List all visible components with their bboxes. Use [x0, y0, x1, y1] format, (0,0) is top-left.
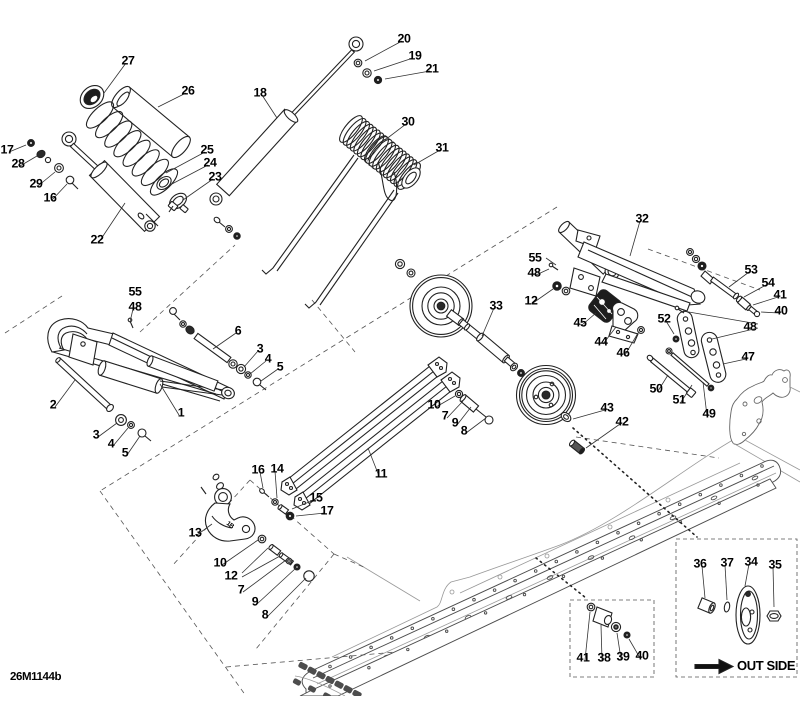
- svg-text:5: 5: [277, 360, 284, 374]
- svg-text:45: 45: [574, 316, 587, 330]
- svg-text:24: 24: [204, 156, 217, 170]
- svg-text:2: 2: [50, 398, 57, 412]
- svg-text:4: 4: [265, 352, 272, 366]
- svg-text:OUT SIDE: OUT SIDE: [737, 658, 796, 673]
- svg-text:48: 48: [129, 300, 142, 314]
- svg-text:51: 51: [673, 393, 686, 407]
- svg-text:46: 46: [617, 346, 630, 360]
- svg-text:5: 5: [122, 446, 129, 460]
- svg-text:23: 23: [209, 170, 222, 184]
- svg-text:40: 40: [636, 649, 649, 663]
- svg-text:40: 40: [775, 304, 788, 318]
- svg-text:48: 48: [528, 266, 541, 280]
- svg-text:10: 10: [214, 556, 227, 570]
- svg-text:17: 17: [1, 143, 14, 157]
- svg-text:55: 55: [529, 251, 542, 265]
- svg-text:11: 11: [375, 467, 388, 481]
- svg-text:42: 42: [616, 415, 629, 429]
- svg-text:50: 50: [650, 382, 663, 396]
- svg-text:15: 15: [310, 491, 323, 505]
- svg-text:16: 16: [252, 463, 265, 477]
- svg-text:16: 16: [44, 191, 57, 205]
- svg-text:37: 37: [721, 556, 734, 570]
- svg-text:12: 12: [525, 294, 538, 308]
- svg-text:19: 19: [409, 49, 422, 63]
- svg-text:6: 6: [235, 324, 242, 338]
- svg-text:49: 49: [703, 407, 716, 421]
- svg-text:44: 44: [595, 335, 608, 349]
- svg-text:26M1144b: 26M1144b: [10, 671, 62, 683]
- svg-text:7: 7: [238, 583, 245, 597]
- svg-text:38: 38: [598, 651, 611, 665]
- svg-text:13: 13: [189, 526, 202, 540]
- svg-text:28: 28: [12, 157, 25, 171]
- svg-text:21: 21: [426, 62, 439, 76]
- svg-text:53: 53: [745, 263, 758, 277]
- svg-text:41: 41: [774, 288, 787, 302]
- svg-text:31: 31: [436, 141, 449, 155]
- svg-text:47: 47: [742, 350, 755, 364]
- svg-text:30: 30: [402, 115, 415, 129]
- svg-text:43: 43: [601, 401, 614, 415]
- svg-text:39: 39: [617, 650, 630, 664]
- svg-text:9: 9: [452, 416, 459, 430]
- svg-text:7: 7: [442, 409, 449, 423]
- svg-text:3: 3: [93, 428, 100, 442]
- svg-text:1: 1: [178, 406, 185, 420]
- svg-text:14: 14: [271, 462, 284, 476]
- svg-text:25: 25: [201, 143, 214, 157]
- svg-text:36: 36: [694, 557, 707, 571]
- svg-text:22: 22: [91, 233, 104, 247]
- svg-text:26: 26: [182, 84, 195, 98]
- svg-text:35: 35: [769, 558, 782, 572]
- svg-text:10: 10: [428, 398, 441, 412]
- svg-text:8: 8: [262, 608, 269, 622]
- svg-text:52: 52: [658, 312, 671, 326]
- svg-text:20: 20: [398, 32, 411, 46]
- svg-text:12: 12: [225, 569, 238, 583]
- svg-text:34: 34: [745, 555, 758, 569]
- svg-text:41: 41: [577, 651, 590, 665]
- svg-text:3: 3: [257, 342, 264, 356]
- svg-text:27: 27: [122, 54, 135, 68]
- svg-text:4: 4: [108, 437, 115, 451]
- svg-text:55: 55: [129, 285, 142, 299]
- svg-text:33: 33: [490, 299, 503, 313]
- svg-text:9: 9: [252, 595, 259, 609]
- svg-text:18: 18: [254, 86, 267, 100]
- svg-text:17: 17: [321, 504, 334, 518]
- svg-text:32: 32: [636, 212, 649, 226]
- svg-text:29: 29: [30, 177, 43, 191]
- svg-text:8: 8: [461, 424, 468, 438]
